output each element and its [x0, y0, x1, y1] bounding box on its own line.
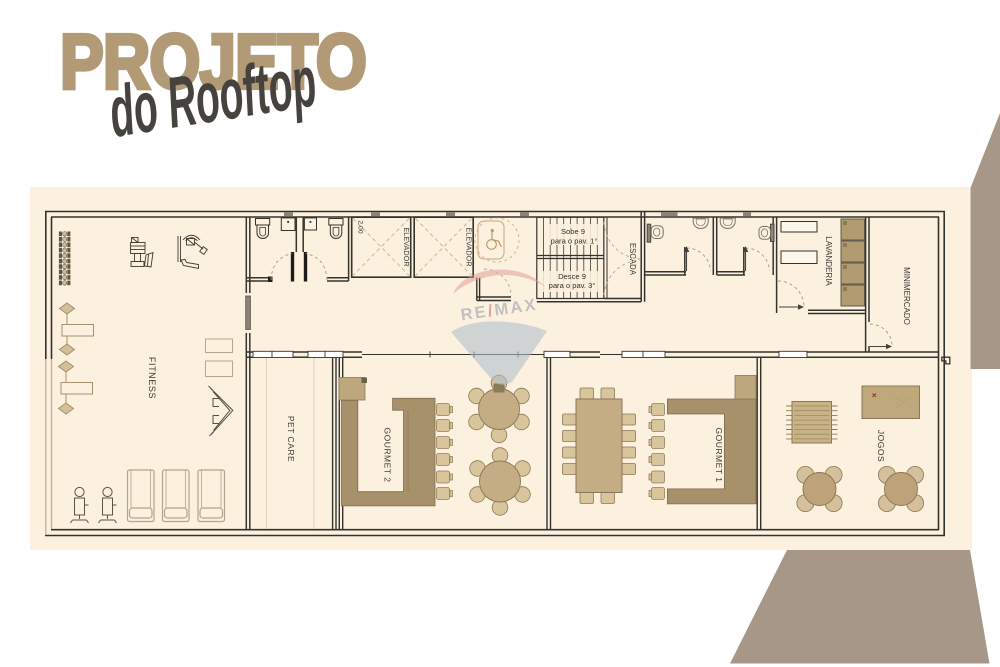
- svg-text:PET CARE: PET CARE: [286, 416, 296, 462]
- svg-text:para o pav. 1°: para o pav. 1°: [551, 237, 598, 246]
- svg-text:ELEVADOR: ELEVADOR: [465, 227, 474, 266]
- svg-text:LAVANDERIA: LAVANDERIA: [824, 236, 833, 286]
- svg-text:ELEVADOR: ELEVADOR: [402, 227, 411, 266]
- svg-text:FITNESS: FITNESS: [147, 357, 157, 399]
- svg-text:para o pav. 3°: para o pav. 3°: [549, 281, 596, 290]
- svg-text:GOURMET 2: GOURMET 2: [383, 428, 393, 483]
- svg-text:2.00: 2.00: [357, 220, 364, 233]
- svg-text:Sobe 9: Sobe 9: [561, 227, 585, 236]
- svg-text:JOGOS: JOGOS: [876, 430, 886, 462]
- svg-text:ESCADA: ESCADA: [628, 243, 637, 276]
- svg-text:GOURMET 1: GOURMET 1: [714, 428, 724, 483]
- svg-text:MINIMERCADO: MINIMERCADO: [902, 267, 911, 325]
- svg-text:Desce 9: Desce 9: [558, 272, 586, 281]
